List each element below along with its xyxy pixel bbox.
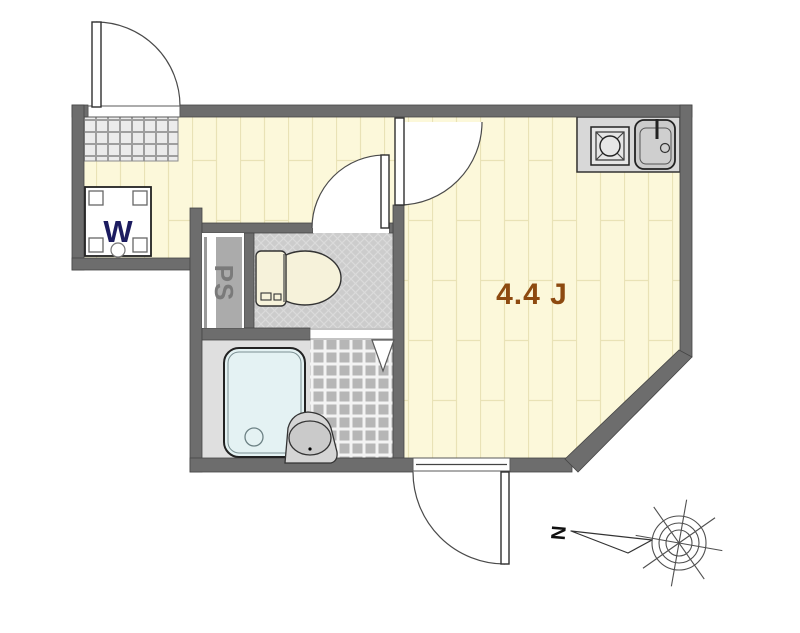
room-size-label: 4.4 J [496, 278, 568, 311]
toilet-icon [256, 251, 341, 306]
washer-label: W [103, 214, 133, 249]
entrance-threshold [88, 106, 180, 117]
pipe-space-label: PS [209, 265, 239, 302]
north-needle-icon [571, 531, 652, 553]
washer-pan: W [85, 187, 151, 257]
floor-plan-page: PS W [0, 0, 800, 633]
genkan-tile-area [84, 117, 178, 161]
entrance-door [88, 22, 180, 117]
floor-plan: PS W [0, 0, 800, 633]
stove-icon [591, 127, 629, 165]
balcony-door [413, 458, 510, 564]
compass-north-label: N [548, 525, 571, 541]
pipe-space: PS [202, 233, 244, 328]
compass-rose: N [548, 500, 723, 587]
sink-icon [635, 119, 675, 169]
kitchen-counter [577, 117, 680, 172]
